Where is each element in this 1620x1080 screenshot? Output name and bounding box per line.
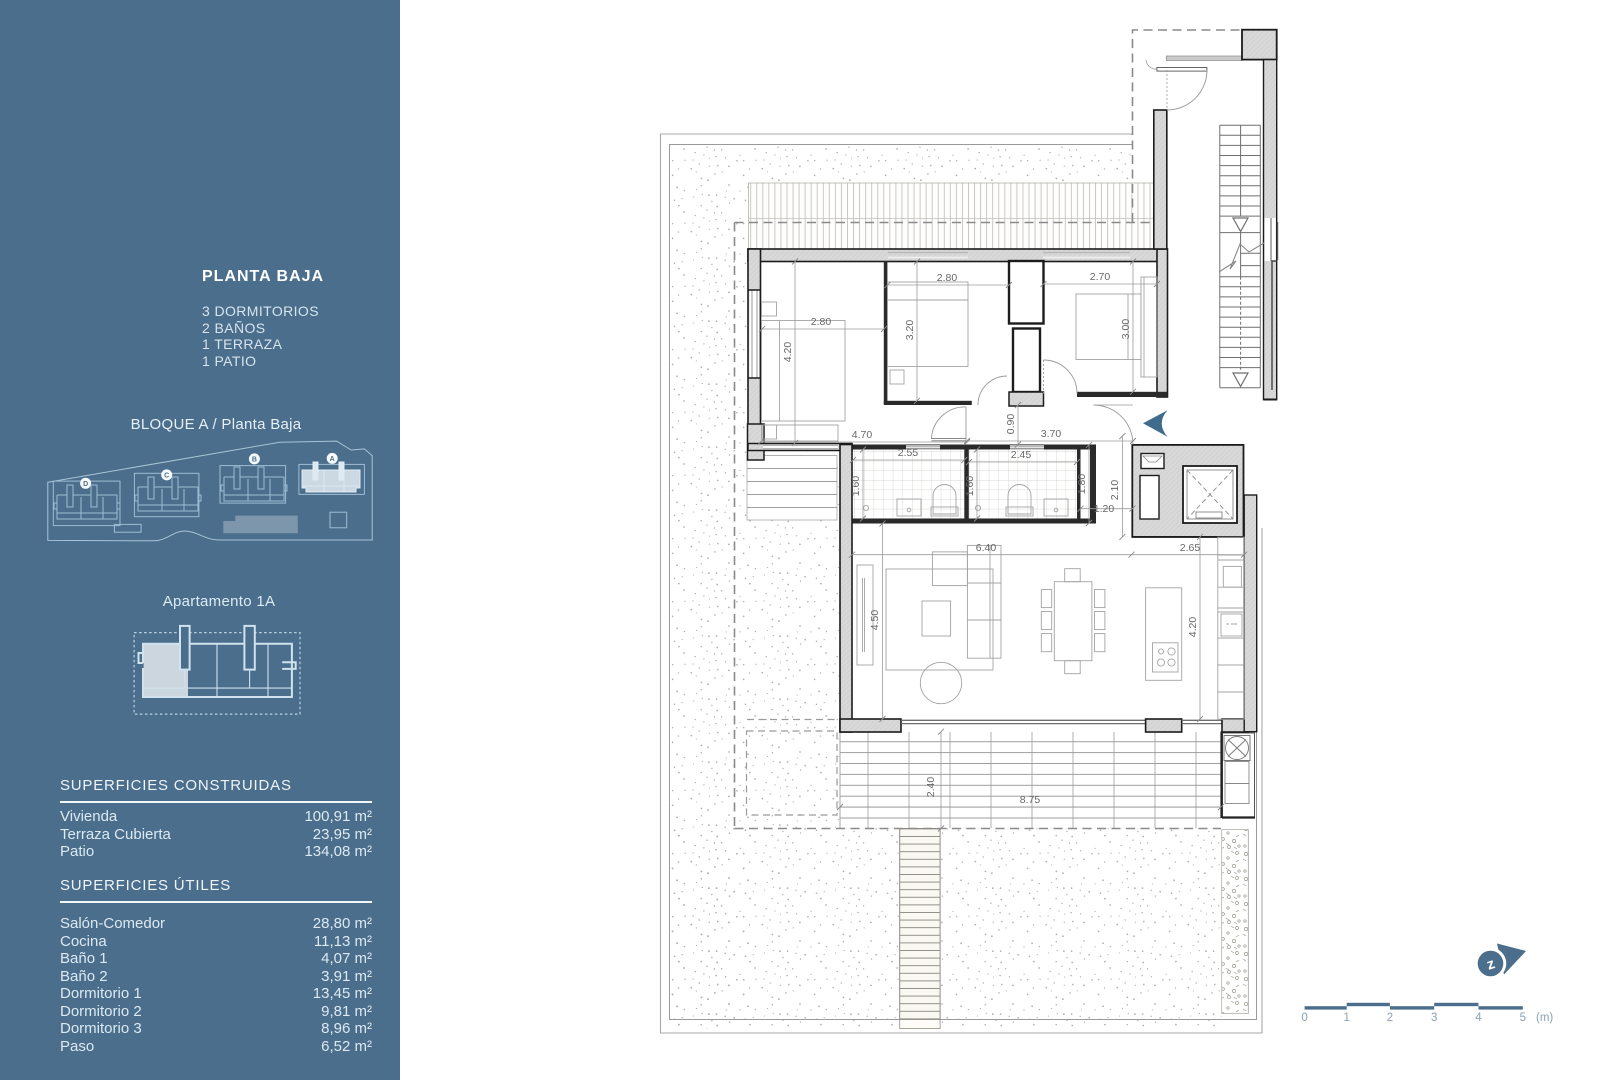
svg-text:1.60: 1.60 <box>850 476 862 497</box>
svg-text:2.10: 2.10 <box>1109 480 1121 501</box>
svg-text:2.45: 2.45 <box>1011 449 1032 461</box>
svg-text:4: 4 <box>1475 1012 1482 1024</box>
svg-text:6.40: 6.40 <box>976 542 997 554</box>
svg-text:0: 0 <box>1301 1012 1307 1024</box>
svg-text:1.60: 1.60 <box>964 476 976 497</box>
svg-text:3.70: 3.70 <box>1041 428 1062 440</box>
svg-text:8.75: 8.75 <box>1020 794 1041 806</box>
svg-text:5: 5 <box>1520 1012 1526 1024</box>
svg-text:1: 1 <box>1343 1012 1349 1024</box>
svg-text:1.20: 1.20 <box>1094 503 1115 515</box>
svg-text:4.20: 4.20 <box>1187 617 1199 638</box>
svg-text:2.40: 2.40 <box>925 777 937 798</box>
svg-text:3.20: 3.20 <box>904 320 916 341</box>
svg-text:2: 2 <box>1387 1012 1393 1024</box>
svg-text:2.55: 2.55 <box>898 447 919 459</box>
svg-text:2.80: 2.80 <box>937 272 958 284</box>
svg-text:(m): (m) <box>1536 1012 1553 1024</box>
svg-text:4.70: 4.70 <box>852 429 873 441</box>
svg-text:3: 3 <box>1431 1012 1437 1024</box>
svg-text:4.20: 4.20 <box>782 342 794 363</box>
svg-text:0.90: 0.90 <box>1005 414 1017 435</box>
svg-text:2.80: 2.80 <box>811 316 832 328</box>
svg-text:2.70: 2.70 <box>1090 271 1111 283</box>
svg-text:3.00: 3.00 <box>1120 319 1132 340</box>
svg-text:4.50: 4.50 <box>869 610 881 631</box>
svg-text:1.80: 1.80 <box>1076 474 1088 495</box>
svg-text:2.65: 2.65 <box>1180 542 1201 554</box>
